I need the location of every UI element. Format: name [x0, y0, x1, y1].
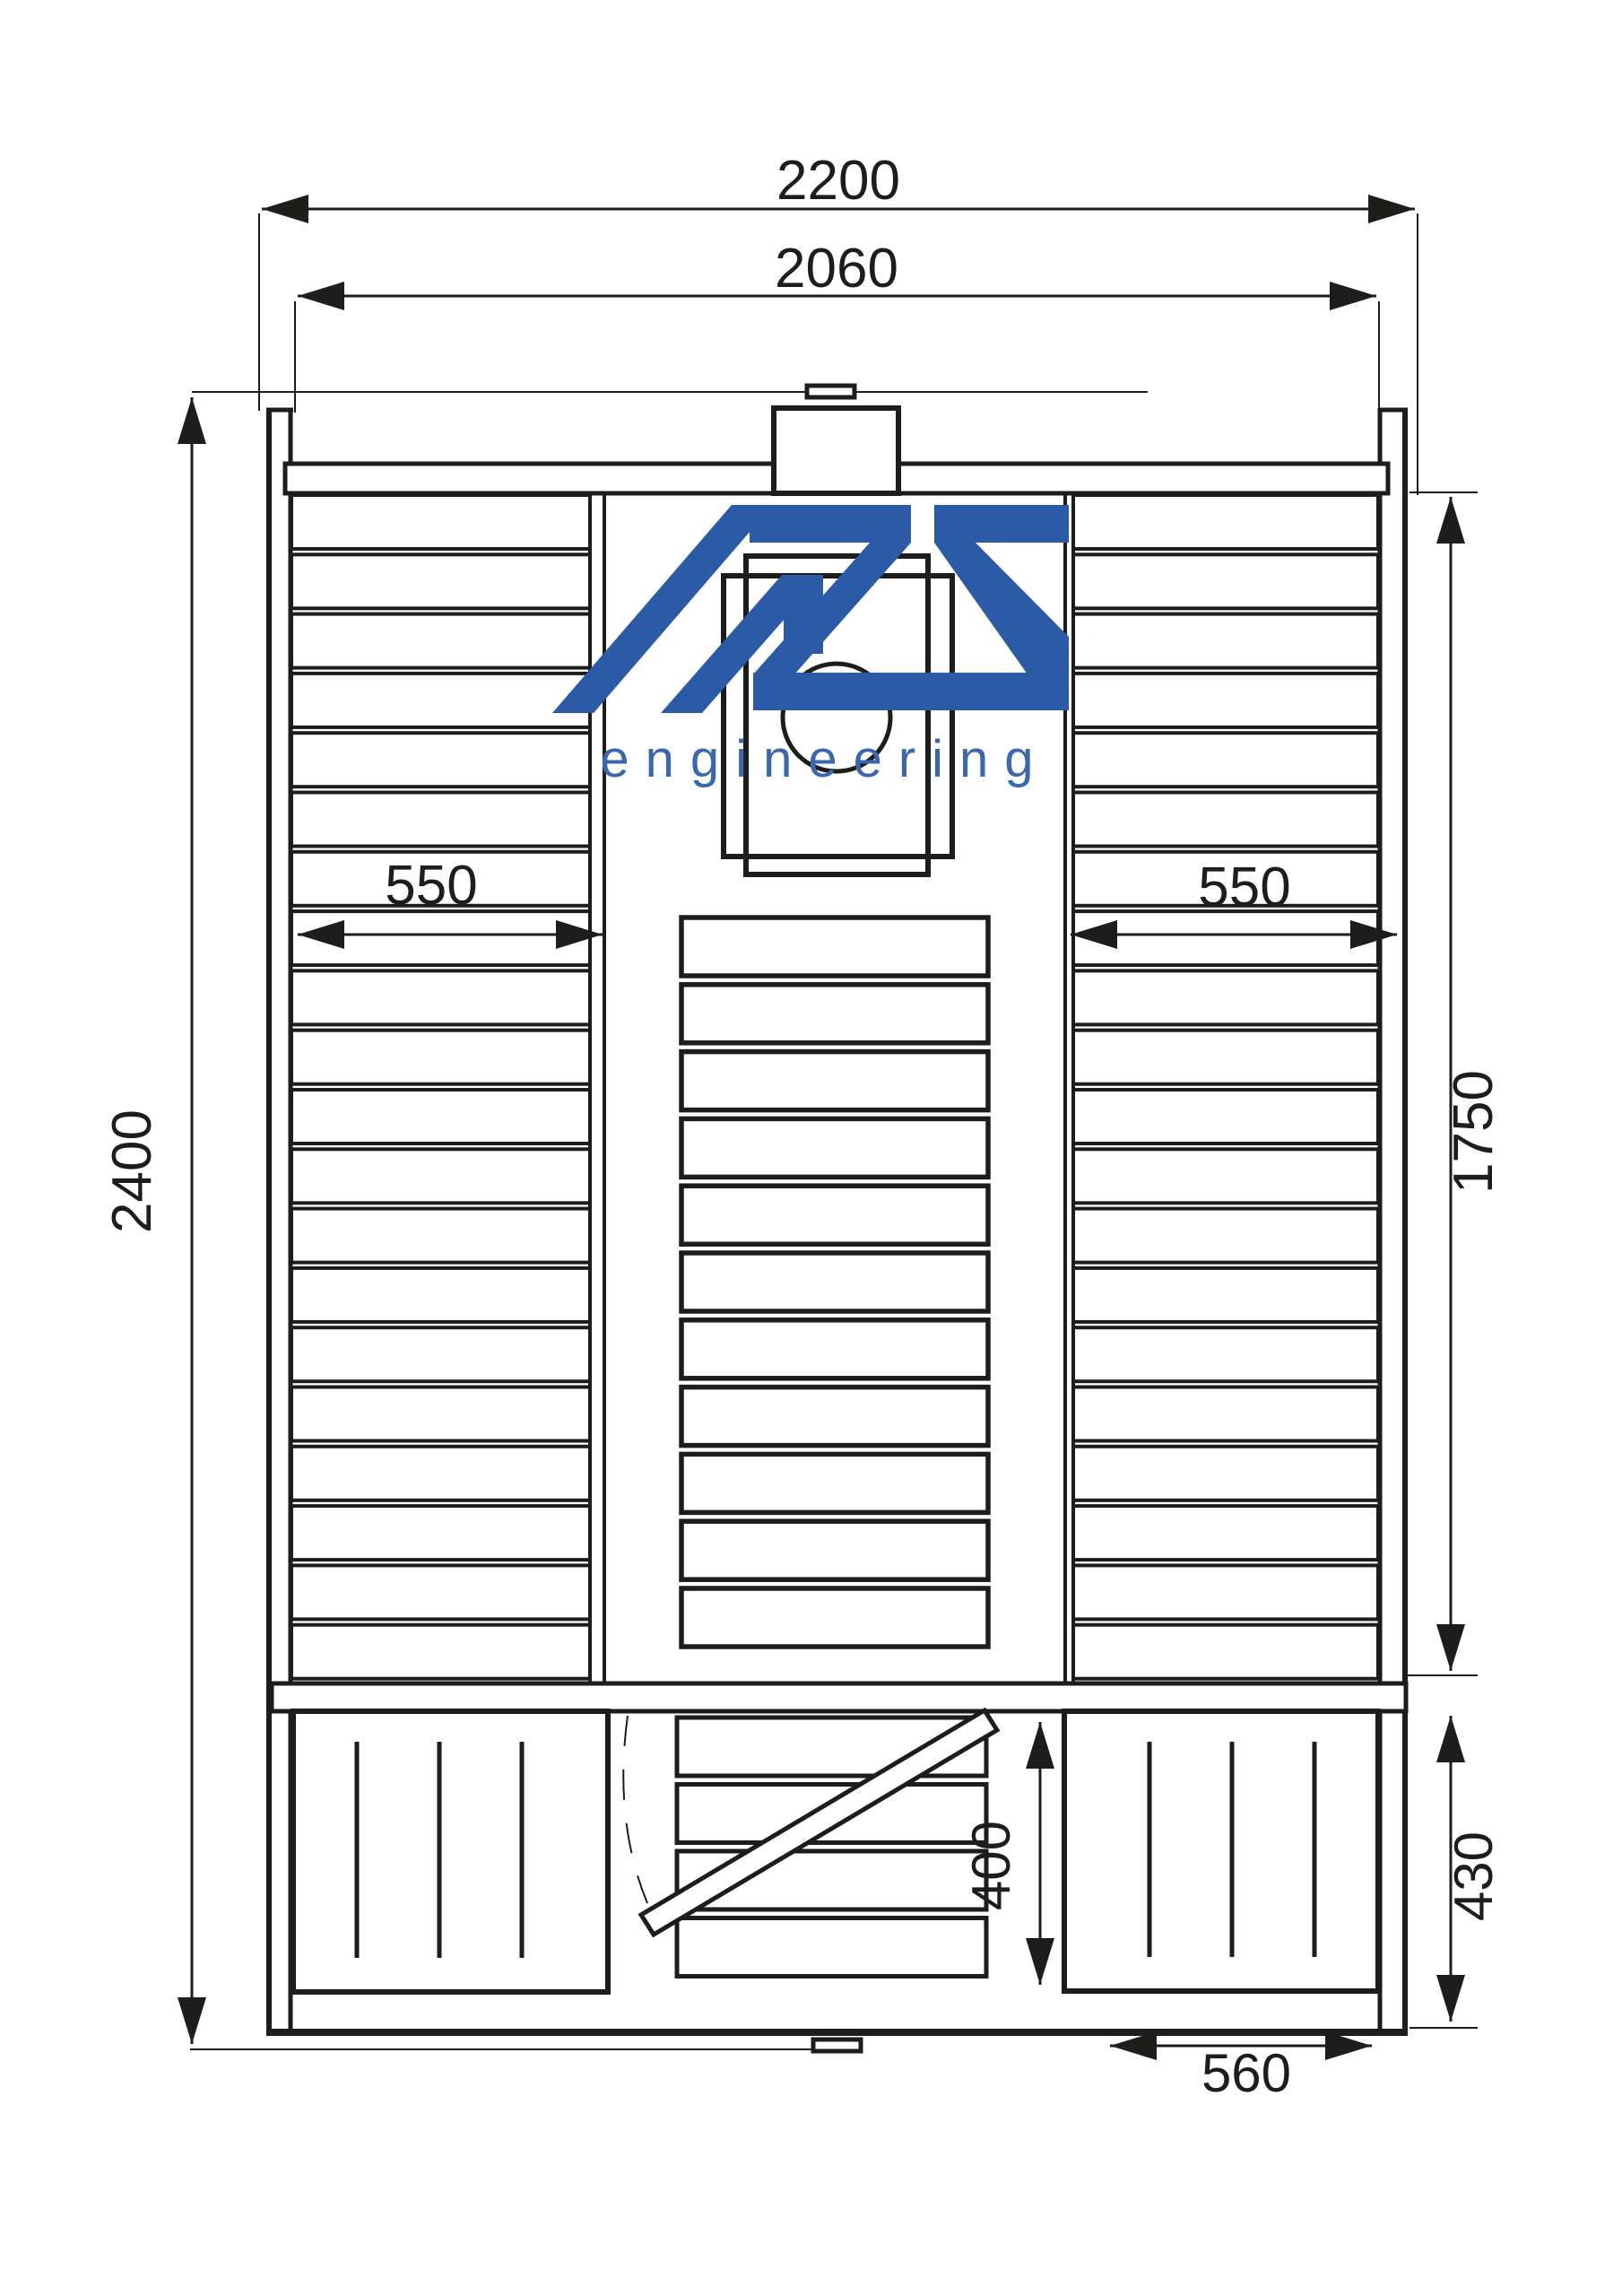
slat — [1073, 614, 1378, 668]
dim-label-430: 430 — [1444, 1831, 1504, 1921]
bottom-cap — [813, 2039, 861, 2051]
slat — [1073, 911, 1378, 965]
porch — [293, 1710, 1378, 1992]
slat — [1073, 1625, 1378, 1679]
slat — [291, 1387, 590, 1441]
slat — [1073, 1090, 1378, 1144]
slat — [1073, 1149, 1378, 1203]
slat — [291, 793, 590, 847]
dim-label-2400: 2400 — [101, 1109, 163, 1233]
slat — [291, 970, 590, 1024]
slat — [1073, 1565, 1378, 1619]
slat — [681, 1186, 988, 1244]
dim-label-550-right: 550 — [1198, 857, 1290, 918]
slat — [291, 1209, 590, 1263]
dim-label-2200: 2200 — [776, 150, 900, 212]
floor-plan-drawing: 2200 2060 2400 550 550 1750 400 430 560 … — [0, 0, 1622, 2296]
slat — [291, 1506, 590, 1560]
slat — [1073, 793, 1378, 847]
slat — [1073, 970, 1378, 1024]
slat — [1073, 1209, 1378, 1263]
slat — [1073, 674, 1378, 727]
slat — [1073, 1327, 1378, 1381]
slat — [1073, 554, 1378, 608]
logo-z-top — [750, 505, 911, 543]
logo-engineering-text: engineering — [600, 730, 1049, 788]
slat — [291, 1090, 590, 1144]
door-swing-arc — [623, 1716, 647, 1903]
slat — [1073, 1268, 1378, 1322]
bottom-beam — [272, 1683, 1406, 1711]
chimney — [774, 408, 898, 493]
dim-label-1750: 1750 — [1443, 1070, 1505, 1194]
platform-right — [1064, 1711, 1378, 1991]
logo-baseline-bar — [753, 673, 1069, 710]
slat — [291, 1268, 590, 1322]
slat — [291, 1149, 590, 1203]
slat — [291, 911, 590, 965]
slat — [1073, 495, 1378, 549]
chimney-cap — [807, 386, 854, 397]
slat — [681, 1253, 988, 1311]
slat — [1073, 1031, 1378, 1084]
technical-drawing-page: 2200 2060 2400 550 550 1750 400 430 560 … — [0, 0, 1622, 2296]
slat — [681, 985, 988, 1043]
logo-s-top — [934, 505, 1069, 543]
bench-left — [291, 495, 590, 1679]
dim-label-2060: 2060 — [775, 238, 898, 300]
slat — [681, 1588, 988, 1647]
slat — [291, 495, 590, 549]
slat — [1073, 1387, 1378, 1441]
logo-azs: engineering — [552, 505, 1069, 788]
slat — [291, 1565, 590, 1619]
bench-right — [1073, 495, 1378, 1679]
slat — [291, 1327, 590, 1381]
slat — [681, 1454, 988, 1512]
slat — [677, 1918, 986, 1977]
slat — [681, 1118, 988, 1177]
slat — [291, 1447, 590, 1500]
slat — [681, 1320, 988, 1378]
dim-label-560: 560 — [1201, 2043, 1291, 2103]
slat — [1073, 1506, 1378, 1560]
slat — [681, 918, 988, 976]
walkway-decking — [681, 918, 988, 1647]
slat — [291, 554, 590, 608]
slat — [681, 1387, 988, 1446]
slat — [291, 614, 590, 668]
slat — [291, 1625, 590, 1679]
slat — [1073, 1447, 1378, 1500]
slat — [681, 1052, 988, 1110]
slat — [1073, 733, 1378, 787]
slat — [291, 733, 590, 787]
slat — [681, 1521, 988, 1579]
dim-label-550-left: 550 — [385, 855, 477, 917]
slat — [291, 674, 590, 727]
slat — [291, 1031, 590, 1084]
platform-left — [293, 1711, 608, 1992]
dim-label-400: 400 — [961, 1821, 1021, 1910]
logo-azs-letters — [552, 505, 1069, 713]
